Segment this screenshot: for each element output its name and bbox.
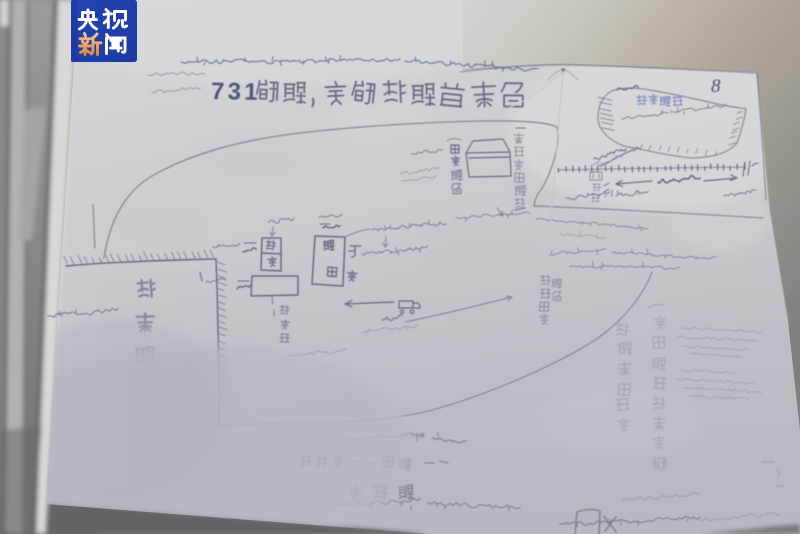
svg-text:731: 731 bbox=[211, 78, 261, 106]
svg-text:8: 8 bbox=[711, 76, 721, 97]
